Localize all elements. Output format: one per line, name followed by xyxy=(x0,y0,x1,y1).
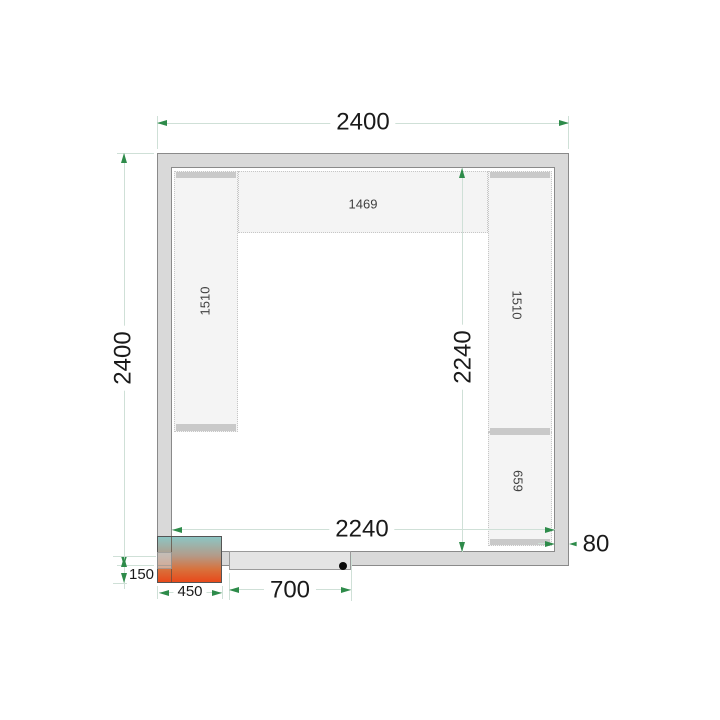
shelf-support-strip xyxy=(176,172,236,178)
shelf-support-strip xyxy=(490,428,550,435)
floor-plan-drawing: 1469 1510 1510 659 2400 2400 2240 2240 8… xyxy=(0,0,720,720)
arrowhead-up xyxy=(459,168,465,178)
arrowhead-left xyxy=(172,527,182,533)
arrowhead-right xyxy=(341,587,351,593)
arrowhead-left xyxy=(159,590,169,596)
arrowhead-right xyxy=(545,527,555,533)
arrowhead-left xyxy=(157,120,167,126)
arrowhead-right xyxy=(545,541,555,547)
door-leaf xyxy=(229,551,351,570)
shelf-right-short-length-label: 659 xyxy=(511,470,526,492)
shelf-right-length-label: 1510 xyxy=(510,291,525,320)
shelf-left-length-label: 1510 xyxy=(198,287,213,316)
inner-width-label: 2240 xyxy=(329,516,394,541)
door-handle-dot xyxy=(339,562,347,570)
arrowhead-right xyxy=(212,590,222,596)
shelf-top-length-label: 1469 xyxy=(349,197,378,212)
shelf-support-strip xyxy=(176,424,236,431)
shelf-support-strip xyxy=(490,172,550,178)
wall-corner-overlay xyxy=(157,552,172,569)
inner-height-label: 2240 xyxy=(450,324,475,389)
outer-width-label: 2400 xyxy=(330,109,395,134)
extension-line xyxy=(157,586,158,599)
extension-line xyxy=(222,586,223,599)
arrowhead-up xyxy=(121,557,127,567)
wall-thickness-label: 80 xyxy=(577,531,616,556)
unit-offset-label: 150 xyxy=(127,567,156,584)
arrowhead-down xyxy=(459,542,465,552)
shelf-support-strip xyxy=(490,539,550,545)
extension-line xyxy=(351,555,352,601)
arrowhead-up xyxy=(121,153,127,163)
arrowhead-right xyxy=(559,120,569,126)
door-width-label: 700 xyxy=(264,577,316,602)
unit-width-label: 450 xyxy=(173,584,206,600)
outer-height-label: 2400 xyxy=(110,325,135,390)
arrowhead-left xyxy=(229,587,239,593)
extension-line xyxy=(113,556,156,557)
